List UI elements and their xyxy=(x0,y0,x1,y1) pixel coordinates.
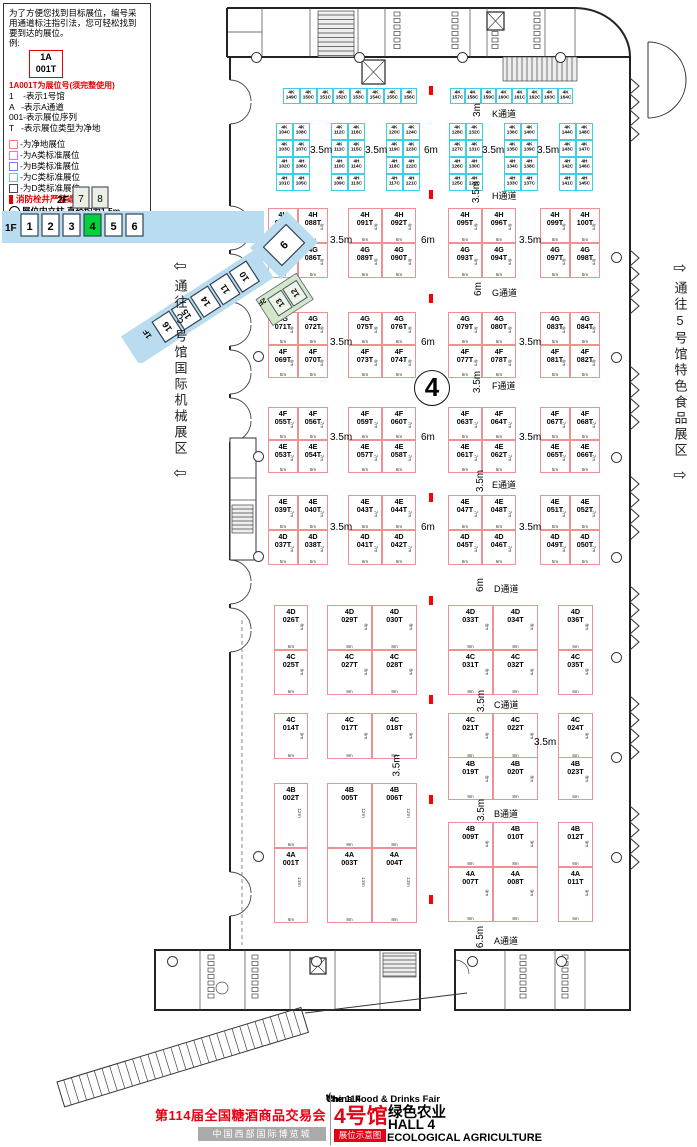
arrow-left-icon: ⇦ xyxy=(168,465,192,483)
svg-text:2: 2 xyxy=(47,221,53,233)
legend-code-line: T -表示展位类型为净地 xyxy=(9,123,145,134)
example-booth-box: 1A001T xyxy=(29,50,63,78)
booth-type-label: -为A类标准展位 xyxy=(20,150,80,161)
arrow-right-icon: ⇨ xyxy=(668,260,692,278)
legend-intro-line: 用通道标注指引法，您可轻松找到 xyxy=(9,18,145,28)
svg-text:5: 5 xyxy=(110,221,116,233)
legend-example-note: 1A001T为展位号(须完整使用) xyxy=(9,80,145,91)
booth-type-swatch xyxy=(9,151,18,160)
legend-type-row: -为C类标准展位 xyxy=(9,172,145,183)
booth-type-label: -为B类标准展位 xyxy=(20,161,80,172)
legend-code-line: 1 -表示1号馆 xyxy=(9,91,145,102)
booth-type-swatch xyxy=(9,162,18,171)
corridor-right-text: 通往5号馆特色食品展区 xyxy=(671,281,690,459)
legend-code-explanations: 1 -表示1号馆A -表示A通道001-表示展位序列T -表示展位类型为净地 xyxy=(9,91,145,133)
corridor-right-sign: ⇨ 通往5号馆特色食品展区 ⇨ xyxy=(668,260,692,485)
legend-code-line: A -表示A通道 xyxy=(9,102,145,113)
legend-intro-line: 要到达的展位。 xyxy=(9,28,145,38)
arrow-right-icon: ⇨ xyxy=(668,467,692,485)
svg-text:1: 1 xyxy=(26,221,32,233)
minimap-1f-label: 1F xyxy=(5,223,17,234)
corridor-left-text: 通往3号馆国际机械展区 xyxy=(171,279,190,457)
svg-text:3: 3 xyxy=(68,221,74,233)
corridor-left-sign: ⇦ 通往3号馆国际机械展区 ⇦ xyxy=(168,258,192,483)
hall-theme-en: ECOLOGICAL AGRICULTURE xyxy=(387,1132,542,1144)
example-booth-row: 1A xyxy=(40,52,52,62)
hall4-floorplan: 4K 149C4K 150C4K 151C4K 152C4K 153C4K 15… xyxy=(0,0,697,1147)
fair-title-cn: 第114届全国糖酒商品交易会 xyxy=(140,1105,326,1124)
legend-intro-line: 为了方便您找到目标展位，编号采 xyxy=(9,8,145,18)
legend-type-row: -为A类标准展位 xyxy=(9,150,145,161)
svg-text:8: 8 xyxy=(97,194,103,205)
legend-intro: 为了方便您找到目标展位，编号采用通道标注指引法，您可轻松找到要到达的展位。例: xyxy=(9,8,145,48)
example-booth-num: 001T xyxy=(36,64,57,74)
svg-text:7: 7 xyxy=(78,194,84,205)
legend-intro-line: 例: xyxy=(9,38,145,48)
legend-type-row: -为净地展位 xyxy=(9,139,145,150)
legend-code-line: 001-表示展位序列 xyxy=(9,112,145,123)
title-divider xyxy=(330,1092,331,1145)
hall-name-cn: 4号馆 xyxy=(334,1100,388,1130)
plan-badge: 展位示意图 xyxy=(334,1129,386,1142)
booth-type-swatch xyxy=(9,173,18,182)
svg-text:4: 4 xyxy=(89,221,96,233)
hall-number-circle: 4 xyxy=(414,370,450,406)
legend-type-row: -为B类标准展位 xyxy=(9,161,145,172)
svg-text:6: 6 xyxy=(131,221,137,233)
minimap-2f-label: 2F xyxy=(57,195,69,206)
venue-name-bar: 中国西部国际博览城 xyxy=(198,1127,326,1141)
arrow-left-icon: ⇦ xyxy=(168,258,192,276)
booth-type-swatch xyxy=(9,140,18,149)
title-block: The 114th China Food & Drinks Fair 第114届… xyxy=(140,1090,580,1147)
booth-type-label: -为净地展位 xyxy=(20,139,65,150)
booth-type-label: -为C类标准展位 xyxy=(20,172,80,183)
hall-name-en: HALL 4 xyxy=(388,1117,435,1132)
